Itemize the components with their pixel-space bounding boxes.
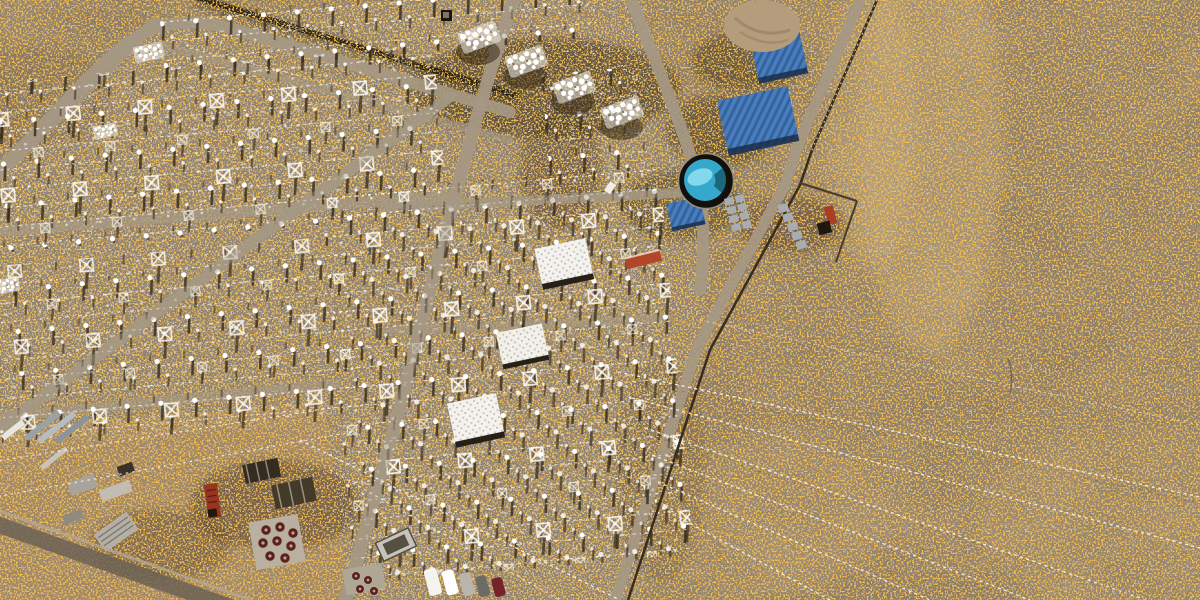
- reel-platform: [248, 514, 306, 570]
- dirt-mound: [724, 0, 800, 52]
- aerial-image: [0, 0, 1200, 600]
- substation-aerial-photo: [0, 0, 1200, 600]
